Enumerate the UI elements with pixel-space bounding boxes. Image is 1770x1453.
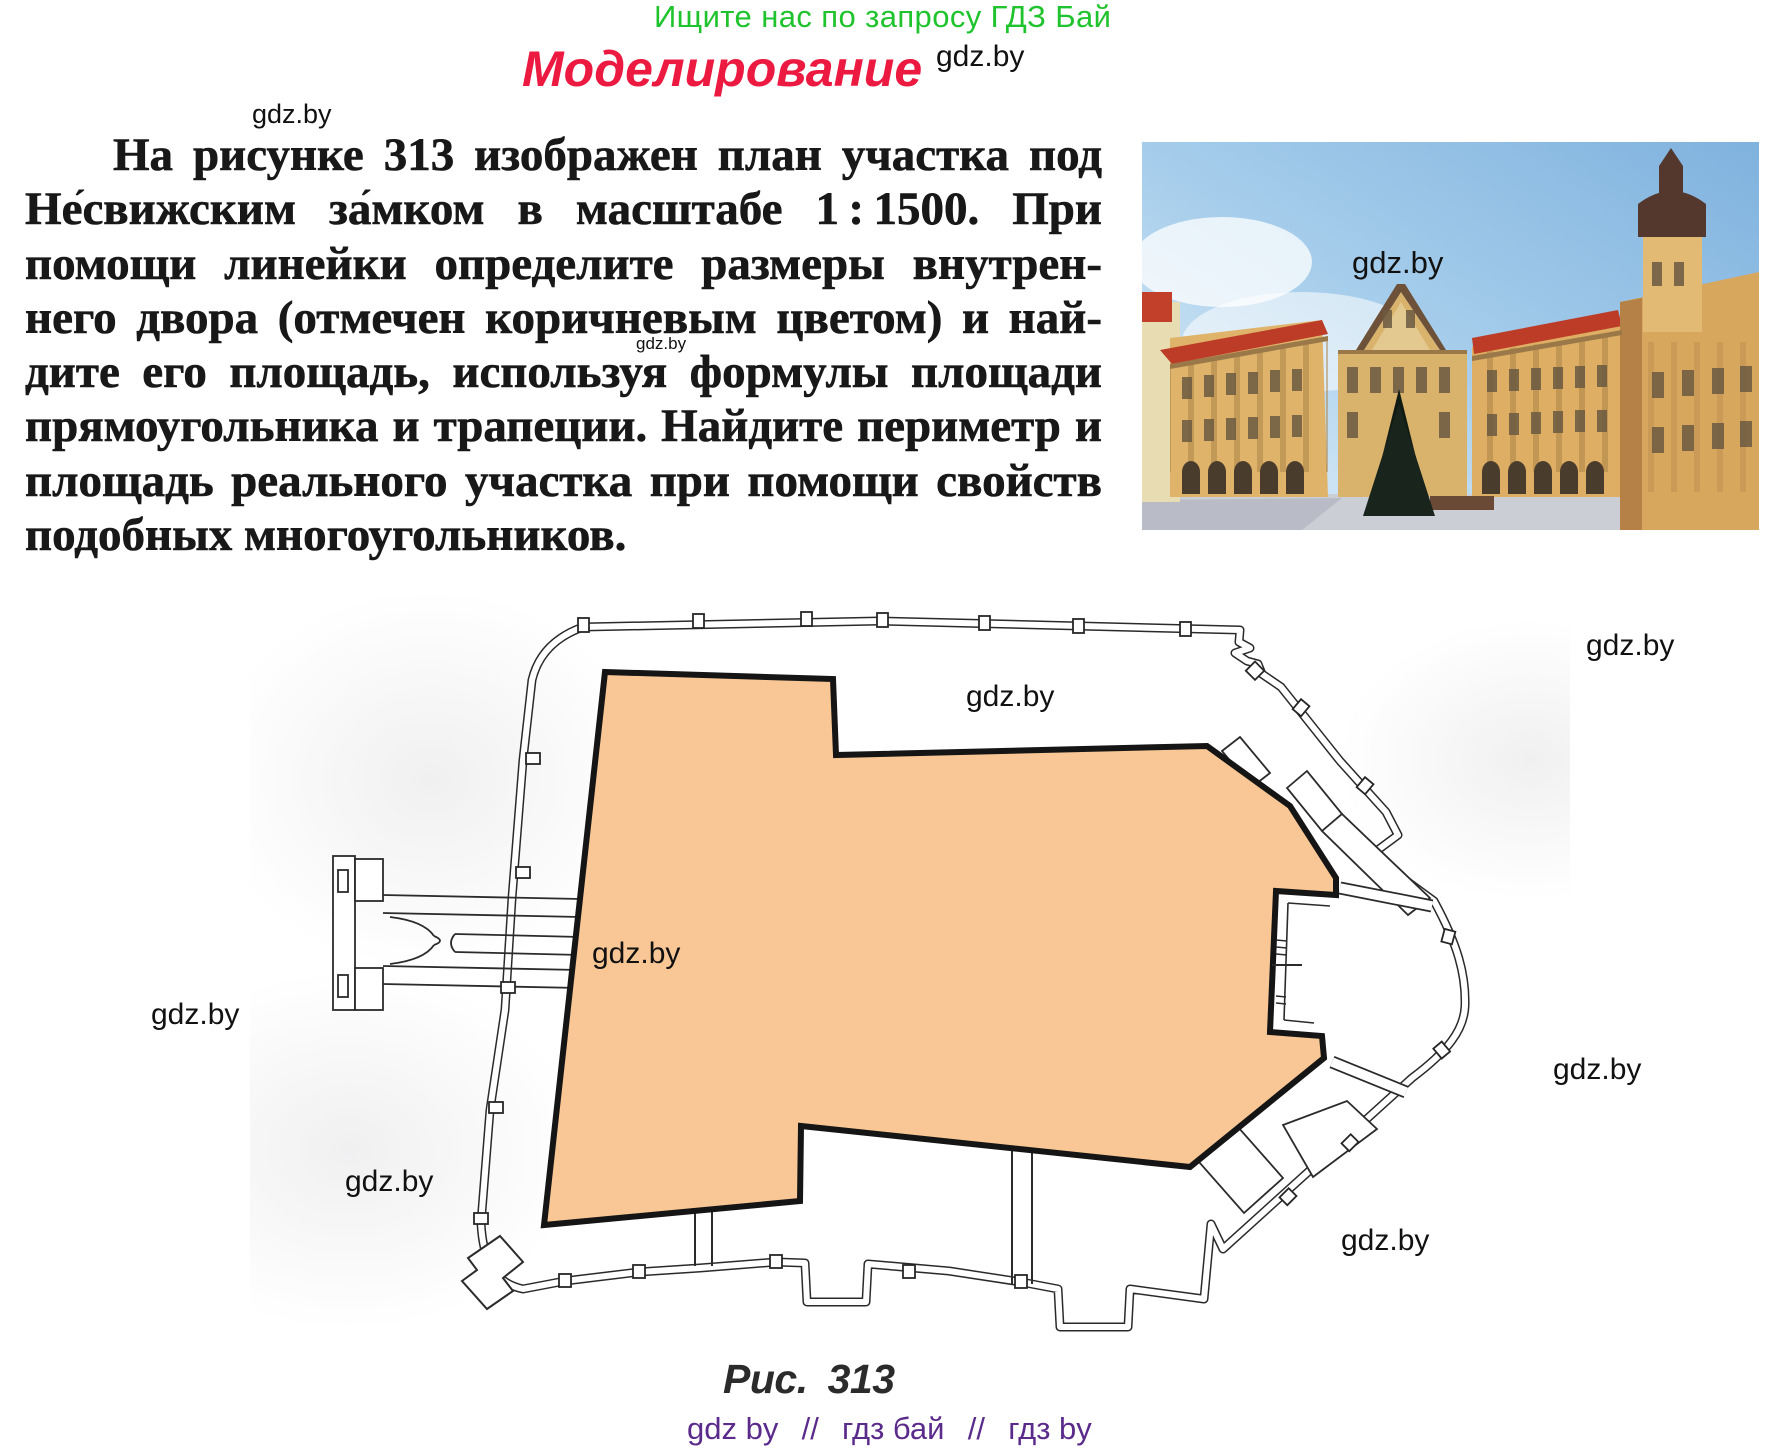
svg-text:gdz.by: gdz.by xyxy=(1352,245,1444,280)
